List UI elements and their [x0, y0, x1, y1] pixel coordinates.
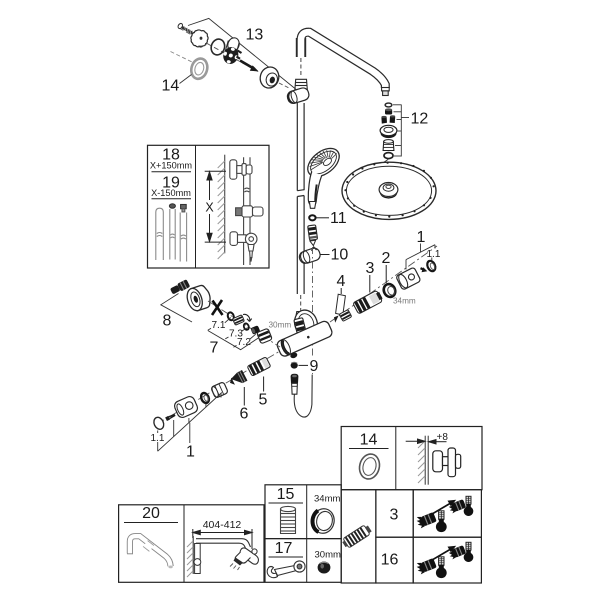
svg-text:34mm: 34mm: [393, 297, 416, 306]
svg-text:1: 1: [186, 444, 195, 461]
svg-text:14: 14: [162, 78, 180, 95]
svg-text:404-412: 404-412: [203, 519, 242, 531]
svg-text:17: 17: [275, 540, 293, 557]
svg-text:11: 11: [330, 210, 347, 227]
svg-text:20: 20: [142, 505, 160, 522]
svg-text:7.1: 7.1: [212, 320, 226, 331]
svg-text:3: 3: [390, 507, 399, 524]
svg-text:16: 16: [381, 552, 399, 569]
svg-text:X+150mm: X+150mm: [150, 161, 192, 171]
svg-text:12: 12: [411, 111, 429, 128]
svg-text:8: 8: [163, 313, 172, 330]
svg-text:4: 4: [337, 273, 346, 290]
svg-text:14: 14: [360, 432, 378, 449]
svg-text:1.1: 1.1: [151, 433, 165, 444]
svg-text:30mm: 30mm: [269, 321, 292, 330]
svg-text:3: 3: [366, 260, 375, 277]
svg-text:10: 10: [331, 247, 349, 264]
svg-text:6: 6: [240, 406, 249, 423]
svg-text:7.2: 7.2: [237, 337, 251, 348]
svg-text:+8: +8: [437, 432, 449, 443]
svg-text:X-150mm: X-150mm: [151, 188, 191, 198]
svg-text:30mm: 30mm: [315, 550, 341, 561]
svg-text:13: 13: [246, 27, 264, 44]
svg-text:2: 2: [382, 250, 391, 267]
svg-text:34mm: 34mm: [314, 494, 340, 505]
svg-text:5: 5: [259, 392, 268, 409]
svg-text:1.1: 1.1: [427, 249, 441, 260]
svg-text:9: 9: [310, 358, 319, 375]
svg-text:15: 15: [277, 486, 295, 503]
svg-text:1: 1: [417, 229, 426, 246]
svg-text:7: 7: [210, 340, 219, 357]
svg-text:X: X: [205, 201, 214, 215]
